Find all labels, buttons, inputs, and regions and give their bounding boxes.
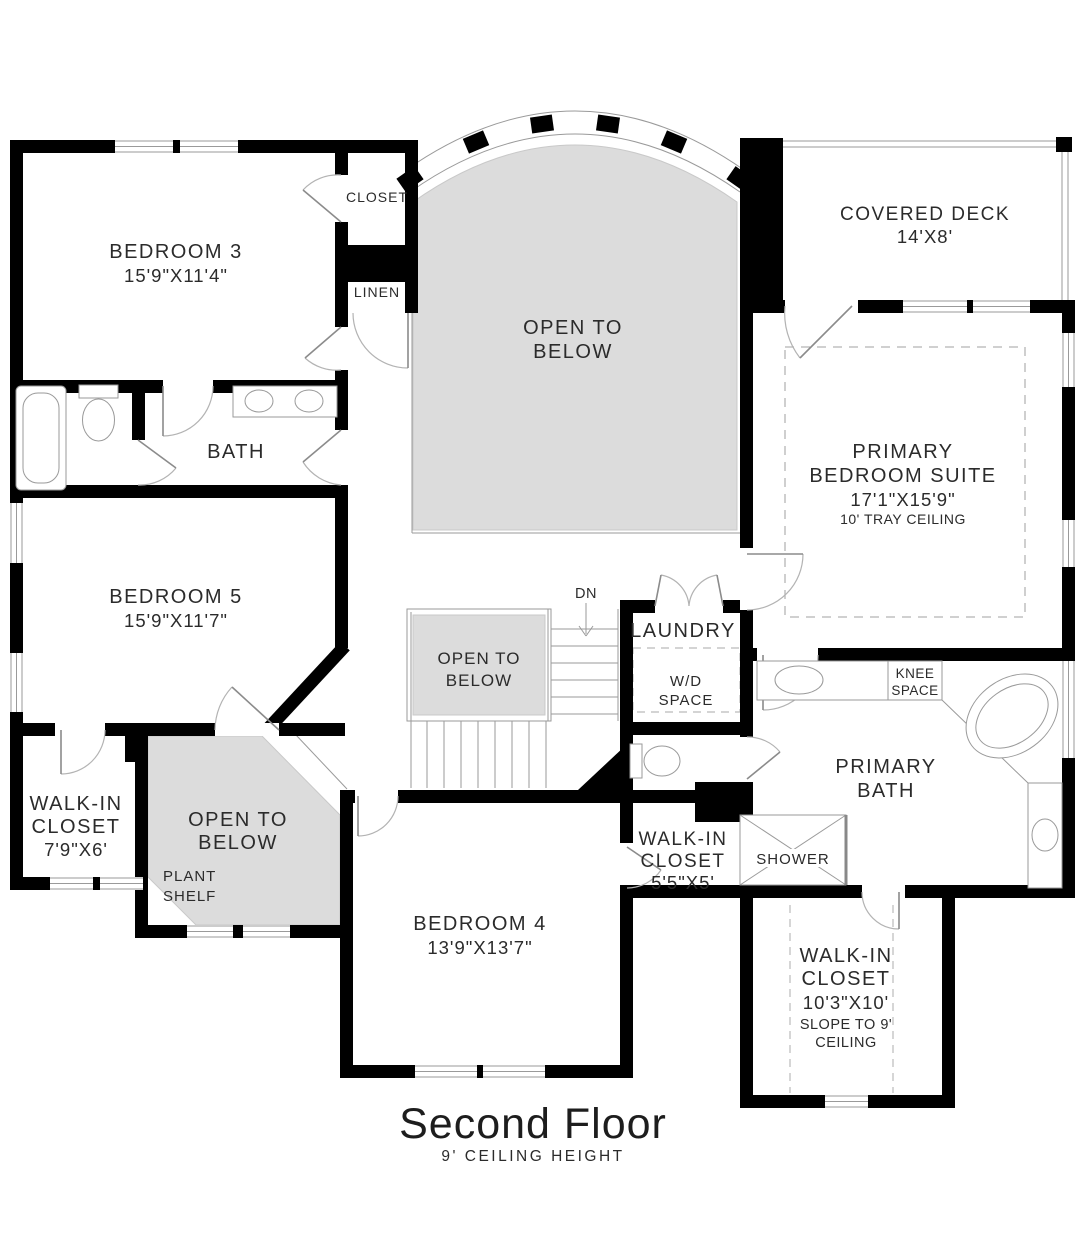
svg-text:CLOSET: CLOSET bbox=[640, 851, 725, 872]
room-label-laundry: LAUNDRY bbox=[630, 620, 736, 642]
door-arc bbox=[785, 306, 852, 358]
svg-text:CEILING: CEILING bbox=[815, 1035, 877, 1051]
room-dims-bedroom4: 13'9"X13'7" bbox=[427, 937, 532, 958]
room-dims-bedroom3: 15'9"X11'4" bbox=[124, 265, 228, 286]
vanity bbox=[1028, 783, 1062, 888]
svg-text:CLOSET: CLOSET bbox=[801, 968, 890, 990]
room-dims-covered-deck: 14'X8' bbox=[897, 226, 953, 247]
sink-icon bbox=[245, 390, 273, 412]
toilet-icon bbox=[630, 744, 680, 778]
room-label-bedroom4: BEDROOM 4 bbox=[413, 913, 547, 935]
page-subtitle: 9' CEILING HEIGHT bbox=[441, 1148, 624, 1165]
window bbox=[243, 925, 290, 938]
window bbox=[973, 300, 1030, 313]
door-arc bbox=[163, 386, 213, 436]
svg-text:CLOSET: CLOSET bbox=[31, 816, 120, 838]
svg-text:SLOPE TO 9': SLOPE TO 9' bbox=[800, 1017, 892, 1033]
window bbox=[1062, 520, 1075, 567]
door-arc bbox=[353, 313, 408, 368]
window bbox=[100, 877, 143, 890]
svg-text:17'1"X15'9": 17'1"X15'9" bbox=[850, 489, 955, 510]
room-label-walkin-closet-primary: WALK-IN bbox=[799, 945, 892, 967]
svg-text:5'5"X5': 5'5"X5' bbox=[651, 872, 715, 893]
window bbox=[825, 1095, 868, 1108]
window bbox=[1062, 661, 1075, 758]
window bbox=[180, 140, 238, 153]
room-label-linen: LINEN bbox=[354, 284, 400, 300]
room-label-bath: BATH bbox=[207, 441, 265, 463]
door-arc bbox=[61, 730, 105, 774]
svg-text:SHELF: SHELF bbox=[163, 888, 216, 905]
label-wd-space: W/D bbox=[670, 673, 702, 690]
room-label-walkin-closet-small: WALK-IN bbox=[29, 793, 122, 815]
svg-text:10' TRAY CEILING: 10' TRAY CEILING bbox=[840, 511, 966, 527]
window bbox=[483, 1065, 545, 1078]
room-label-covered-deck: COVERED DECK bbox=[840, 204, 1010, 225]
door-arc bbox=[138, 440, 176, 485]
window bbox=[1062, 333, 1075, 387]
label-dn: DN bbox=[575, 586, 597, 602]
sink-icon bbox=[775, 666, 823, 694]
page-title: Second Floor bbox=[399, 1100, 667, 1148]
window bbox=[50, 877, 93, 890]
svg-text:BELOW: BELOW bbox=[533, 341, 613, 363]
room-label-bedroom5: BEDROOM 5 bbox=[109, 586, 243, 608]
room-label-bedroom3: BEDROOM 3 bbox=[109, 241, 243, 263]
sink-icon bbox=[295, 390, 323, 412]
vanity bbox=[757, 661, 888, 700]
sink-icon bbox=[1032, 819, 1058, 851]
svg-text:10'3"X10': 10'3"X10' bbox=[803, 992, 889, 1013]
svg-text:BELOW: BELOW bbox=[198, 832, 278, 854]
double-vanity bbox=[233, 386, 337, 417]
svg-text:SPACE: SPACE bbox=[891, 683, 938, 698]
svg-text:7'9"X6': 7'9"X6' bbox=[44, 839, 108, 860]
label-open-below-plant: OPEN TO bbox=[188, 809, 288, 831]
room-label-closet: CLOSET bbox=[346, 189, 408, 205]
label-open-below-main: OPEN TO bbox=[523, 317, 623, 339]
label-plant-shelf: PLANT bbox=[163, 868, 216, 885]
label-knee-space: KNEE bbox=[896, 666, 935, 681]
svg-text:BELOW: BELOW bbox=[446, 671, 512, 690]
window bbox=[10, 503, 23, 563]
room-label-walkin-closet-bed4: WALK-IN bbox=[639, 829, 728, 850]
window bbox=[903, 300, 967, 313]
window bbox=[115, 140, 173, 153]
window bbox=[187, 925, 233, 938]
svg-text:BATH: BATH bbox=[857, 780, 915, 802]
toilet-icon bbox=[79, 385, 118, 441]
svg-text:SPACE: SPACE bbox=[659, 692, 714, 709]
bathtub-icon bbox=[16, 386, 66, 490]
room-label-primary-bath: PRIMARY bbox=[835, 756, 936, 778]
window bbox=[10, 653, 23, 712]
room-label-primary-suite: PRIMARY bbox=[852, 441, 953, 463]
label-open-below-stairs: OPEN TO bbox=[438, 649, 521, 668]
corner-tub-icon bbox=[950, 657, 1074, 776]
label-shower: SHOWER bbox=[756, 851, 830, 868]
floor-plan-page: BEDROOM 3 15'9"X11'4" CLOSET LINEN BATH … bbox=[0, 0, 1080, 1258]
door-arc bbox=[747, 554, 803, 610]
room-dims-bedroom5: 15'9"X11'7" bbox=[124, 610, 228, 631]
floor-plan-drawing: BEDROOM 3 15'9"X11'4" CLOSET LINEN BATH … bbox=[0, 0, 1080, 1258]
window bbox=[415, 1065, 477, 1078]
dn-arrow-icon bbox=[579, 603, 593, 636]
svg-text:BEDROOM SUITE: BEDROOM SUITE bbox=[809, 465, 996, 487]
